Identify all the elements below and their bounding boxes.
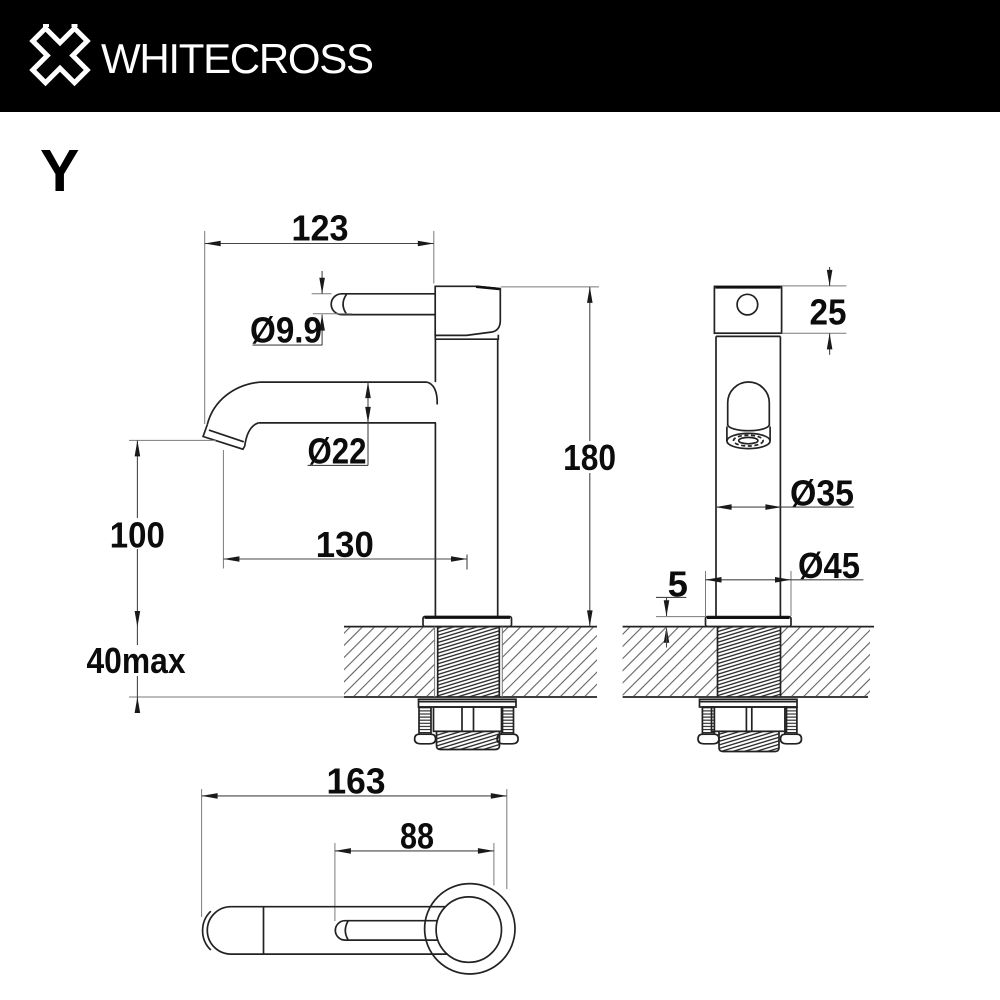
svg-text:40max: 40max — [87, 640, 187, 681]
svg-text:163: 163 — [327, 761, 386, 802]
svg-text:130: 130 — [316, 524, 374, 565]
svg-text:Ø9.9: Ø9.9 — [250, 310, 322, 351]
svg-text:Ø22: Ø22 — [308, 431, 367, 472]
svg-text:Ø45: Ø45 — [798, 545, 860, 586]
svg-text:25: 25 — [810, 292, 847, 333]
svg-text:Ø35: Ø35 — [790, 473, 854, 514]
svg-text:100: 100 — [110, 515, 165, 556]
svg-text:123: 123 — [292, 208, 349, 249]
svg-text:5: 5 — [668, 564, 688, 605]
svg-text:180: 180 — [563, 437, 616, 478]
svg-text:88: 88 — [400, 816, 434, 857]
